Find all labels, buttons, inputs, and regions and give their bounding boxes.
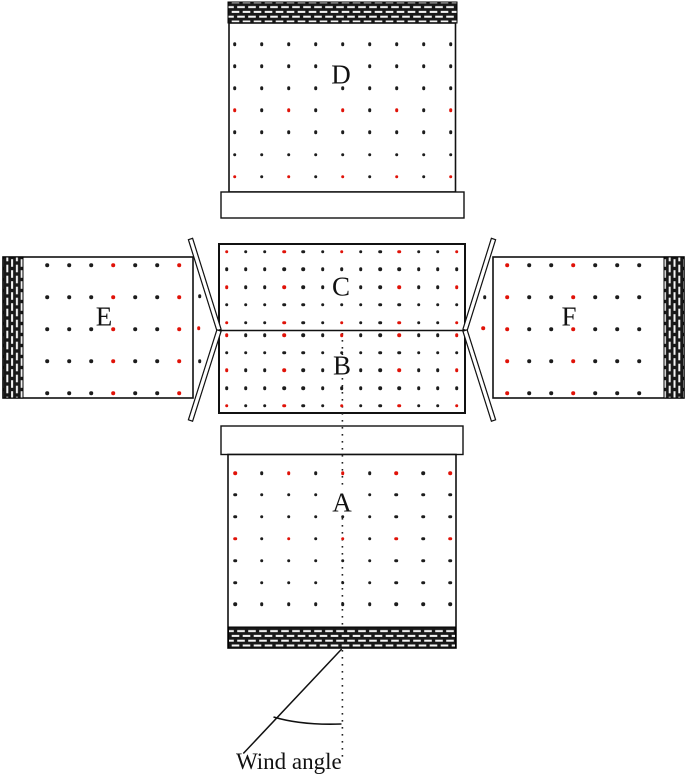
panel-label-c: C (332, 274, 350, 301)
panel-label-a: A (332, 490, 352, 517)
panel-e-hatch-band (3, 257, 23, 398)
panel-label-b: B (333, 353, 351, 380)
center-block-outline (219, 244, 465, 413)
panel-label-f: F (561, 304, 576, 331)
chevron-right-upper-strip (463, 238, 496, 330)
panel-d-hatch-band (228, 2, 457, 23)
panel-label-d: D (331, 62, 351, 89)
panel-label-e: E (96, 304, 113, 331)
panel-d-base-plate (221, 192, 464, 218)
panel-d-outline (229, 23, 456, 192)
panel-f-outline (493, 257, 684, 398)
wind-angle-label: Wind angle (236, 749, 342, 774)
panel-a-hatch-band (229, 627, 456, 648)
wind-direction-line (243, 649, 341, 754)
wind-angle-arc (274, 717, 342, 724)
chevron-right-lower-strip (463, 330, 496, 421)
panel-a-top-plate (221, 426, 463, 455)
structure-svg (0, 0, 685, 777)
figure-canvas: D C B A E F Wind angle (0, 0, 685, 777)
panel-f-hatch-band (664, 257, 684, 398)
